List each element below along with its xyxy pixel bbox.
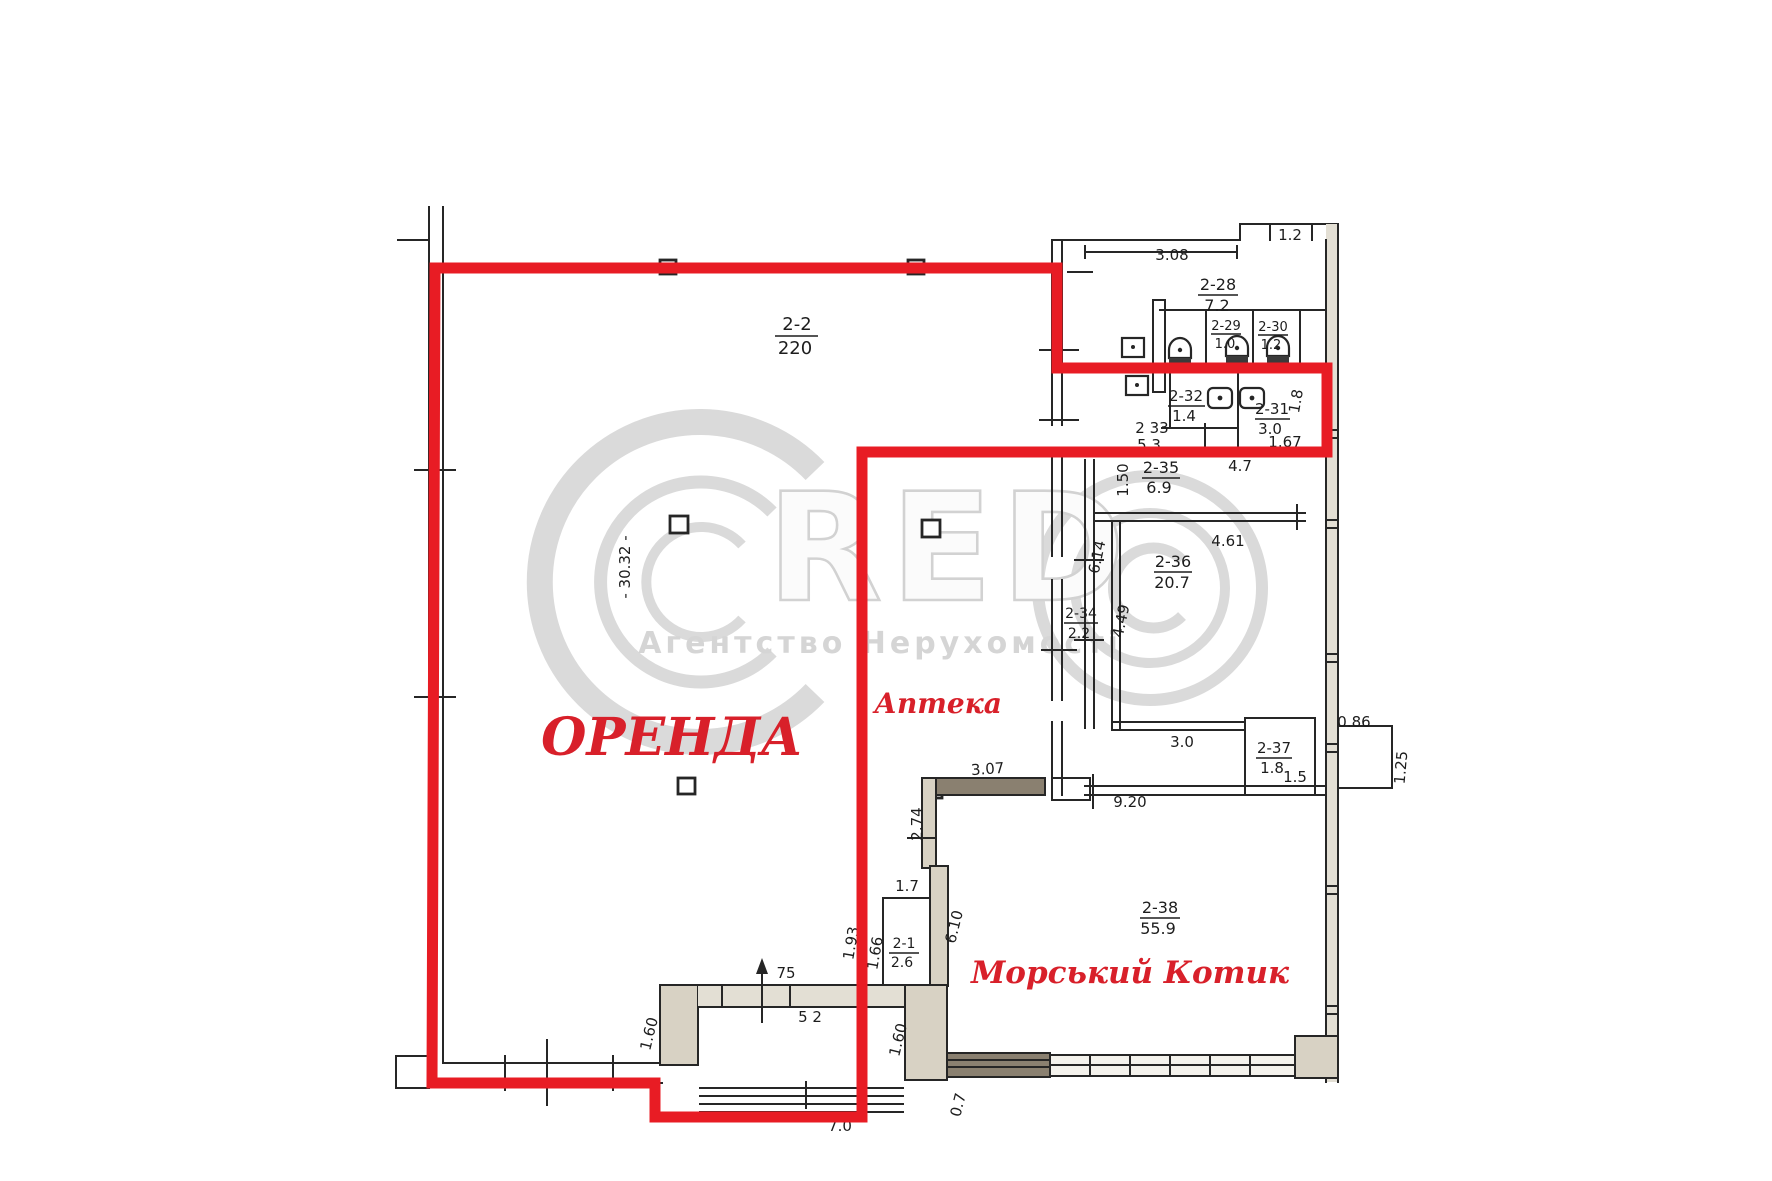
dim-0-7: 0.7 [947, 1091, 970, 1119]
room-area-2-38: 55.9 [1140, 919, 1176, 938]
dim-1-7: 1.7 [895, 877, 919, 895]
room-label-2-34: 2-34 [1065, 606, 1097, 622]
dim-75: 75 [776, 964, 795, 982]
watermark-subtitle: Агентство Нерухомості [638, 626, 1122, 661]
room-area-2-37: 1.8 [1260, 759, 1284, 777]
dim-5-2: 5 2 [798, 1008, 822, 1026]
room-label-2-37: 2-37 [1257, 739, 1291, 757]
dim-1-50: 1.50 [1114, 463, 1132, 496]
dim-3-08: 3.08 [1155, 246, 1188, 264]
tenant-label: Морський Котик [970, 955, 1290, 991]
dim-9-20: 9.20 [1113, 793, 1146, 811]
room-label-2-33: 2 33 [1135, 419, 1168, 437]
room-area-2-32: 1.4 [1172, 407, 1196, 425]
dim-4-7: 4.7 [1228, 457, 1252, 475]
room-label-2-2: 2-2 [782, 314, 811, 335]
room-area-2-1: 2.6 [891, 955, 913, 971]
dim-1-5: 1.5 [1283, 768, 1307, 786]
dim-1-25: 1.25 [1391, 750, 1412, 785]
room-label-2-28: 2-28 [1200, 275, 1236, 294]
dim-3-07: 3.07 [970, 759, 1005, 779]
toilet-icon [1169, 338, 1191, 365]
room-label-2-36: 2-36 [1155, 552, 1191, 571]
floor-plan-scan: RED Агентство Нерухомості [0, 0, 1772, 1181]
rent-label: ОРЕНДА [541, 707, 803, 768]
room-area-2-34: 2.2 [1068, 626, 1090, 642]
dim-4-61: 4.61 [1211, 532, 1244, 550]
sink-icon [1208, 388, 1232, 408]
dim-2-74: 2.74 [908, 807, 926, 840]
room-label-2-35: 2-35 [1143, 458, 1179, 477]
dim-30-32: - 30.32 - [616, 535, 634, 598]
room-label-2-30: 2-30 [1258, 320, 1288, 335]
room-area-2-2: 220 [778, 338, 812, 359]
room-area-2-29: 1.0 [1215, 337, 1236, 352]
pharmacy-label: Аптека [872, 687, 1002, 720]
room-label-2-29: 2-29 [1211, 319, 1241, 334]
room-area-2-28: 7.2 [1204, 296, 1229, 315]
room-label-2-1: 2-1 [893, 936, 916, 952]
dim-0-86: 0.86 [1337, 713, 1370, 731]
dim-1-8: 1.8 [1285, 388, 1307, 415]
dim-1-2: 1.2 [1278, 226, 1302, 244]
room-area-2-30: 1.2 [1261, 338, 1282, 353]
room-label-2-32: 2-32 [1169, 387, 1203, 405]
dim-3-0: 3.0 [1170, 733, 1194, 751]
floor-plan-svg: RED Агентство Нерухомості [0, 0, 1772, 1181]
room-area-2-36: 20.7 [1154, 573, 1190, 592]
room-area-2-35: 6.9 [1146, 478, 1171, 497]
room-label-2-38: 2-38 [1142, 898, 1178, 917]
room-label-2-31: 2-31 [1255, 400, 1289, 418]
dim-1-60-left: 1.60 [636, 1015, 662, 1052]
